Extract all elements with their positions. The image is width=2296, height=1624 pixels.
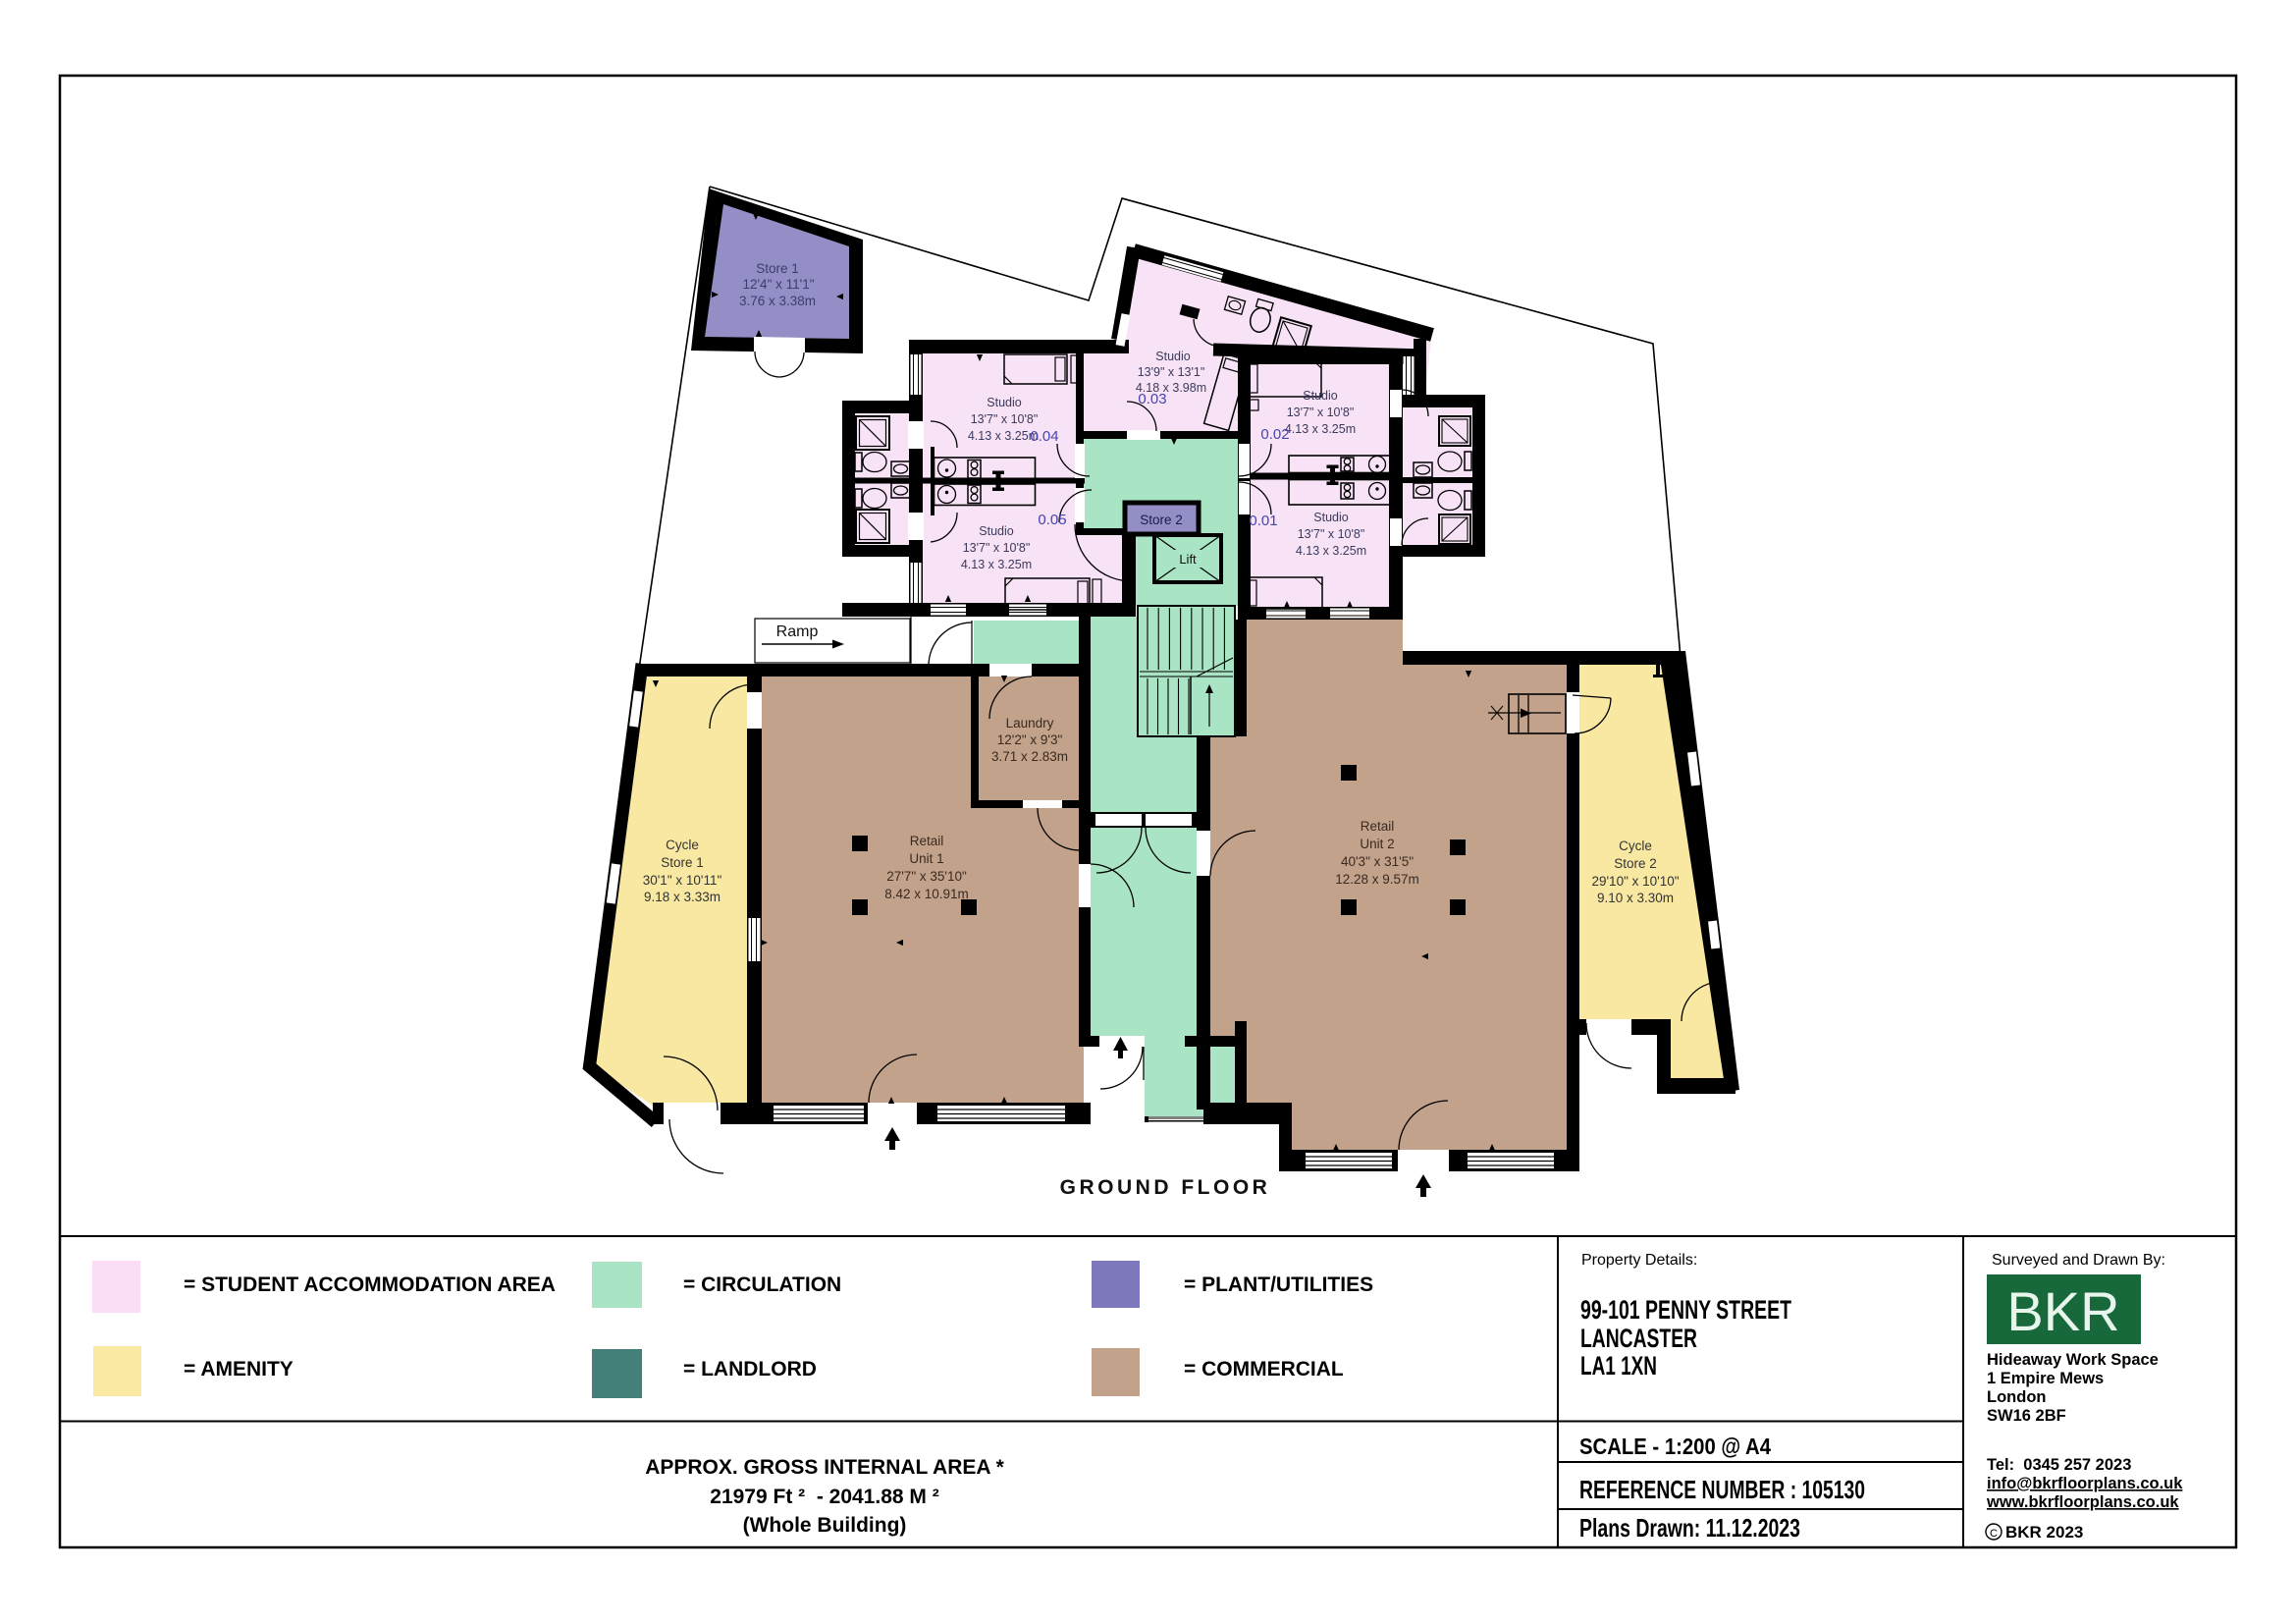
svg-text:Tel: 0345 257 2023: Tel: 0345 257 2023 bbox=[1987, 1456, 2131, 1474]
svg-text:0.02: 0.02 bbox=[1260, 426, 1289, 443]
svg-text:Studio: Studio bbox=[1313, 511, 1348, 524]
svg-text:3.76 x 3.38m: 3.76 x 3.38m bbox=[739, 294, 816, 308]
svg-text:Studio: Studio bbox=[1303, 389, 1337, 403]
svg-text:4.13 x 3.25m: 4.13 x 3.25m bbox=[1285, 422, 1356, 436]
svg-text:= STUDENT ACCOMMODATION AREA: = STUDENT ACCOMMODATION AREA bbox=[184, 1273, 556, 1296]
svg-text:Store 2: Store 2 bbox=[1140, 513, 1183, 527]
svg-text:4.13 x 3.25m: 4.13 x 3.25m bbox=[961, 558, 1032, 571]
svg-text:LA1 1XN: LA1 1XN bbox=[1580, 1351, 1657, 1380]
svg-text:0.05: 0.05 bbox=[1038, 512, 1066, 528]
svg-text:13'7" x 10'8": 13'7" x 10'8" bbox=[1298, 527, 1365, 541]
svg-text:13'7" x 10'8": 13'7" x 10'8" bbox=[1287, 406, 1355, 419]
svg-text:13'7" x 10'8": 13'7" x 10'8" bbox=[971, 412, 1039, 426]
svg-text:0.01: 0.01 bbox=[1249, 513, 1277, 529]
svg-text:APPROX. GROSS INTERNAL AREA *: APPROX. GROSS INTERNAL AREA * bbox=[645, 1456, 1004, 1479]
svg-text:SCALE - 1:200 @ A4: SCALE - 1:200 @ A4 bbox=[1579, 1434, 1771, 1459]
svg-text:Surveyed and Drawn By:: Surveyed and Drawn By: bbox=[1992, 1252, 2165, 1269]
svg-text:BKR 2023: BKR 2023 bbox=[2005, 1523, 2083, 1542]
svg-text:Ramp: Ramp bbox=[776, 623, 819, 640]
svg-text:29'10" x 10'10": 29'10" x 10'10" bbox=[1591, 874, 1679, 889]
svg-text:= CIRCULATION: = CIRCULATION bbox=[683, 1273, 841, 1296]
svg-text:Studio: Studio bbox=[1155, 350, 1190, 363]
svg-text:Store 2: Store 2 bbox=[1614, 856, 1657, 871]
svg-text:9.10 x 3.30m: 9.10 x 3.30m bbox=[1597, 891, 1674, 905]
svg-text:0.03: 0.03 bbox=[1138, 391, 1166, 407]
svg-text:C: C bbox=[1990, 1528, 1998, 1540]
svg-text:13'7" x 10'8": 13'7" x 10'8" bbox=[963, 541, 1031, 555]
svg-text:Laundry: Laundry bbox=[1006, 716, 1054, 731]
svg-text:Studio: Studio bbox=[979, 524, 1013, 538]
svg-text:= PLANT/UTILITIES: = PLANT/UTILITIES bbox=[1184, 1273, 1373, 1296]
svg-text:Studio: Studio bbox=[987, 396, 1021, 409]
svg-text:LANCASTER: LANCASTER bbox=[1580, 1324, 1697, 1353]
svg-text:Plans Drawn: 11.12.2023: Plans Drawn: 11.12.2023 bbox=[1579, 1513, 1800, 1543]
svg-text:REFERENCE NUMBER : 105130: REFERENCE NUMBER : 105130 bbox=[1579, 1475, 1865, 1504]
svg-text:12'2" x 9'3": 12'2" x 9'3" bbox=[997, 732, 1063, 747]
svg-text:12'4" x 11'1": 12'4" x 11'1" bbox=[742, 277, 814, 292]
svg-text:GROUND FLOOR: GROUND FLOOR bbox=[1060, 1176, 1271, 1199]
svg-text:London: London bbox=[1987, 1388, 2046, 1406]
svg-text:40'3" x 31'5": 40'3" x 31'5" bbox=[1341, 854, 1414, 869]
svg-text:13'9" x 13'1": 13'9" x 13'1" bbox=[1138, 365, 1205, 379]
svg-text:30'1" x 10'11": 30'1" x 10'11" bbox=[643, 873, 722, 888]
svg-text:Unit 1: Unit 1 bbox=[909, 851, 943, 866]
svg-text:8.42 x 10.91m: 8.42 x 10.91m bbox=[884, 887, 969, 901]
svg-text:9.18 x 3.33m: 9.18 x 3.33m bbox=[644, 890, 721, 904]
svg-text:SW16 2BF: SW16 2BF bbox=[1987, 1407, 2066, 1425]
svg-text:Lift: Lift bbox=[1179, 552, 1197, 567]
svg-text:(Whole Building): (Whole Building) bbox=[743, 1514, 907, 1537]
svg-text:3.71 x 2.83m: 3.71 x 2.83m bbox=[991, 749, 1068, 764]
svg-text:Property Details:: Property Details: bbox=[1581, 1252, 1697, 1269]
svg-text:info@bkrfloorplans.co.uk: info@bkrfloorplans.co.uk bbox=[1987, 1475, 2183, 1492]
svg-text:BKR: BKR bbox=[2006, 1280, 2119, 1342]
svg-text:Store 1: Store 1 bbox=[756, 261, 799, 276]
svg-text:Cycle: Cycle bbox=[666, 838, 699, 852]
svg-text:Retail: Retail bbox=[1361, 819, 1395, 834]
svg-text:= LANDLORD: = LANDLORD bbox=[683, 1358, 817, 1380]
svg-text:Unit 2: Unit 2 bbox=[1360, 837, 1394, 851]
svg-text:0.04: 0.04 bbox=[1030, 428, 1058, 445]
svg-text:1 Empire Mews: 1 Empire Mews bbox=[1987, 1370, 2104, 1387]
svg-text:Hideaway Work Space: Hideaway Work Space bbox=[1987, 1351, 2159, 1369]
svg-text:= COMMERCIAL: = COMMERCIAL bbox=[1184, 1358, 1344, 1380]
svg-text:12.28 x 9.57m: 12.28 x 9.57m bbox=[1335, 872, 1419, 887]
svg-text:4.13 x 3.25m: 4.13 x 3.25m bbox=[968, 429, 1039, 443]
svg-text:Retail: Retail bbox=[910, 834, 944, 848]
svg-text:www.bkrfloorplans.co.uk: www.bkrfloorplans.co.uk bbox=[1986, 1493, 2179, 1511]
svg-text:99-101 PENNY STREET: 99-101 PENNY STREET bbox=[1580, 1295, 1791, 1325]
svg-text:Cycle: Cycle bbox=[1619, 839, 1652, 853]
svg-text:27'7" x 35'10": 27'7" x 35'10" bbox=[886, 869, 967, 884]
svg-text:= AMENITY: = AMENITY bbox=[184, 1358, 294, 1380]
svg-text:4.13 x 3.25m: 4.13 x 3.25m bbox=[1296, 544, 1366, 558]
svg-text:Store 1: Store 1 bbox=[661, 855, 704, 870]
svg-text:21979 Ft ² - 2041.88 M ²: 21979 Ft ² - 2041.88 M ² bbox=[710, 1486, 938, 1508]
